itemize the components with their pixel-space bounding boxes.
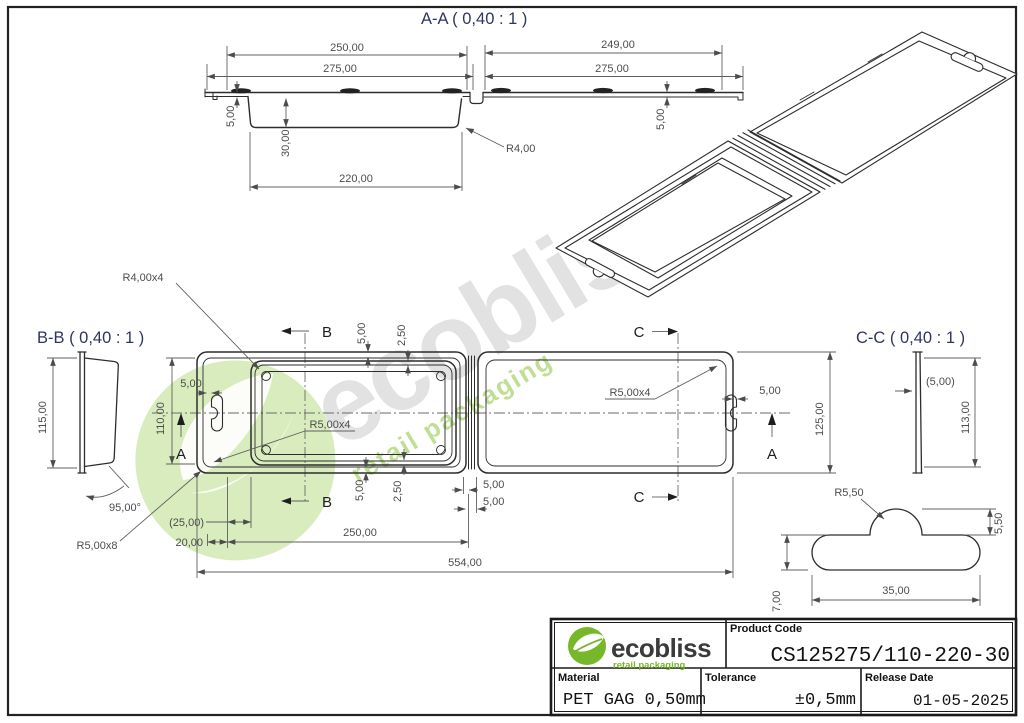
dim-5-lid: 5,00: [655, 109, 667, 130]
svg-text:A: A: [767, 446, 777, 463]
dim-110: 110,00: [155, 402, 167, 435]
title-block: ecobliss retail packaging Product Code C…: [551, 619, 1016, 715]
dim-2-5-top: 2,50: [396, 325, 408, 346]
dim-115: 115,00: [37, 401, 49, 434]
svg-text:A: A: [176, 446, 186, 463]
view-title-bb: B-B ( 0,40 : 1 ): [37, 329, 144, 347]
release-date-value: 01-05-2025: [913, 692, 1009, 710]
material-label: Material: [558, 672, 600, 684]
dim-5-flange: 5,00: [225, 106, 237, 127]
dim-35: 35,00: [882, 585, 910, 597]
dim-249: 249,00: [601, 39, 635, 51]
dim-7: 7,00: [771, 591, 783, 612]
dim-5-50: 5,50: [993, 513, 1005, 534]
drawing-canvas: ecobliss retail packaging A-A ( 0,40 : 1…: [0, 0, 1024, 723]
dim-220: 220,00: [339, 173, 373, 185]
product-code-value: CS125275/110-220-30: [771, 645, 1010, 668]
release-date-label: Release Date: [865, 672, 934, 684]
drawing-sheet: ecobliss retail packaging A-A ( 0,40 : 1…: [0, 0, 1024, 723]
dim-554: 554,00: [448, 557, 482, 569]
dim-5-bottom: 5,00: [354, 480, 366, 501]
dim-125: 125,00: [814, 402, 826, 436]
view-title-cc: C-C ( 0,40 : 1 ): [856, 329, 965, 347]
dim-25-ref: (25,00): [169, 517, 204, 529]
dim-275-left: 275,00: [323, 63, 357, 75]
dim-5-top: 5,00: [356, 323, 368, 344]
dim-5-slot-right: 5,00: [759, 385, 780, 397]
view-title-aa: A-A ( 0,40 : 1 ): [421, 10, 527, 28]
callout-r5x4-left: R5,00x4: [310, 419, 351, 431]
callout-r4x4: R4,00x4: [123, 272, 164, 284]
svg-text:B: B: [322, 494, 332, 511]
dim-275-right: 275,00: [595, 63, 629, 75]
dim-95deg: 95,00°: [109, 502, 141, 514]
material-value: PET GAG 0,50mm: [563, 691, 706, 710]
callout-r5x4-right: R5,00x4: [610, 387, 651, 399]
dim-r4: R4,00: [506, 143, 535, 155]
dim-5-hinge-2: 5,00: [483, 496, 504, 508]
dim-250: 250,00: [330, 42, 364, 54]
dim-5-ref: (5,00): [926, 376, 955, 388]
product-code-label: Product Code: [730, 623, 802, 635]
dim-113: 113,00: [960, 401, 972, 434]
brand-name: ecobliss: [611, 633, 711, 663]
brand-tagline: retail packaging: [613, 660, 686, 671]
svg-text:C: C: [634, 489, 645, 506]
seal-bump: [231, 88, 251, 93]
dim-2-5-bottom: 2,50: [392, 481, 404, 502]
dim-5-hinge-1: 5,00: [483, 479, 504, 491]
dim-250-bottom: 250,00: [343, 527, 377, 539]
tolerance-value: ±0,5mm: [795, 691, 856, 710]
svg-text:C: C: [634, 324, 645, 341]
svg-text:B: B: [322, 324, 332, 341]
dim-20: 20,00: [175, 537, 203, 549]
dim-5-slot-left: 5,00: [180, 378, 201, 390]
dim-30: 30,00: [280, 129, 292, 157]
callout-r5-50: R5,50: [834, 487, 863, 499]
tolerance-label: Tolerance: [705, 672, 756, 684]
callout-r5x8: R5,00x8: [77, 540, 118, 552]
